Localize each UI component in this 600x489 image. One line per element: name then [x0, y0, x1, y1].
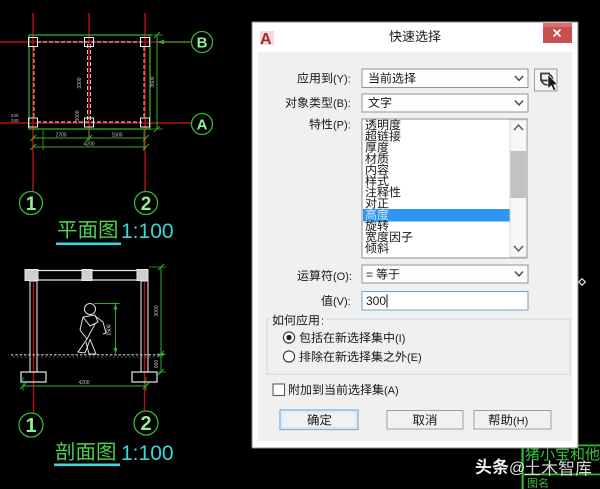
svg-text:(O):: (O):	[333, 271, 352, 283]
svg-text:=: =	[366, 268, 373, 282]
svg-text:240: 240	[11, 118, 19, 123]
svg-text:(H): (H)	[513, 416, 528, 428]
svg-text:(I): (I)	[395, 333, 405, 345]
svg-text:(P):: (P):	[333, 120, 351, 132]
svg-text:1: 1	[26, 194, 37, 215]
svg-text:@: @	[509, 460, 525, 477]
svg-text:1: 1	[25, 415, 36, 437]
svg-text:B: B	[197, 35, 208, 52]
svg-text:1:100: 1:100	[121, 442, 174, 465]
svg-text:4200: 4200	[83, 142, 94, 148]
svg-text:(Y):: (Y):	[333, 74, 351, 86]
svg-text:300: 300	[366, 294, 386, 308]
svg-text:1:100: 1:100	[121, 220, 174, 243]
svg-text:3000: 3000	[75, 110, 81, 121]
svg-text:(V):: (V):	[333, 296, 351, 308]
svg-text:2: 2	[140, 413, 151, 435]
svg-text:3300: 3300	[77, 77, 83, 88]
svg-text:1500: 1500	[111, 133, 122, 139]
svg-text:2700: 2700	[55, 133, 66, 139]
svg-text:(E): (E)	[407, 352, 422, 364]
svg-text:2: 2	[141, 194, 152, 215]
svg-text::: :	[321, 316, 324, 328]
svg-text:A: A	[197, 117, 208, 134]
svg-text:1500: 1500	[107, 324, 113, 335]
svg-text:900: 900	[154, 360, 160, 369]
svg-text:(A): (A)	[384, 385, 399, 397]
svg-text:(B):: (B):	[333, 98, 351, 110]
svg-text:3600: 3600	[150, 76, 156, 87]
svg-text:3000: 3000	[154, 305, 160, 316]
svg-text:4200: 4200	[78, 380, 89, 386]
